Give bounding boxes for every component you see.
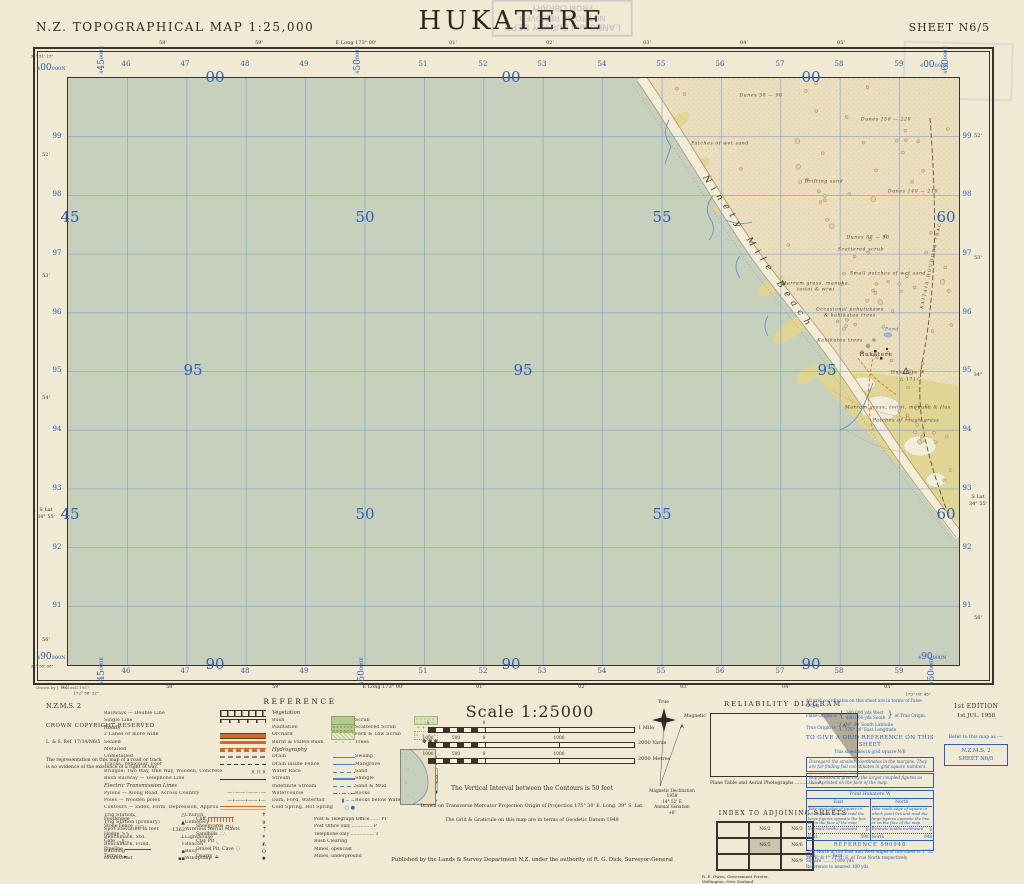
latitude-tick-left: 52' [42, 152, 50, 158]
legend-label: Cliff [196, 817, 206, 823]
longitude-tick-top: 04' [740, 40, 748, 46]
legend-symbol [208, 817, 234, 822]
longitude-tick-bottom: E Long 173° 00' [363, 684, 404, 690]
grid-easting-bottom: 51 [419, 667, 428, 675]
full-northing-label: 400000N [37, 64, 66, 73]
refer-label: Refer to this map as :— [938, 735, 1014, 741]
gref-unit-line: Reference to nearest 100 yds [806, 864, 934, 869]
grid-easting-top: 54 [598, 60, 607, 68]
longitude-tick-top: 58' [159, 40, 167, 46]
corner-graticule-value: 172° 58' 32" [73, 691, 98, 696]
brace-glyph: { [838, 722, 843, 732]
adjoining-grid: N6/2N6/3N6/5N6/6N6/9 [716, 821, 814, 871]
gref-north-cell: North Take south edge of square in which… [871, 799, 934, 840]
legend-label: Gravel Pit, Cave [196, 847, 234, 853]
latitude-tick-right: 34° 55' [969, 501, 987, 507]
legend-label: Pipeline [104, 847, 123, 853]
scale-bar-number: 1000 [554, 736, 565, 741]
legend-label: Gate [104, 839, 115, 845]
legend-bottom-row: Hedge∿∿Sandhills∴∴Telephone only .......… [104, 831, 438, 839]
longitude-tick-top: E Long 173° 00' [336, 40, 377, 46]
legend-symbol [333, 778, 355, 780]
legend-symbol [125, 849, 151, 850]
legend-pair: Watercourse [272, 791, 355, 797]
grid-number-large: 45 [60, 210, 79, 225]
legend-symbol [220, 806, 266, 811]
latitude-tick-right: 34° [974, 372, 983, 378]
grid-number-large: 95 [817, 363, 836, 378]
legend-symbol [220, 748, 266, 752]
legend-symbol: ⫢ [124, 855, 127, 860]
legend-row: Roads [104, 725, 266, 732]
legend-symbol [333, 793, 355, 794]
gref-east-cell: East Take west edge of square in which p… [807, 799, 871, 840]
declination-caption-line: +8' [636, 810, 708, 815]
legend: REFERENCE Railways — Double LineSingle L… [100, 697, 438, 872]
legend-pair: Indefinite Stream [272, 784, 355, 790]
grid-northing-right: 97 [963, 249, 972, 257]
grid-number-large: 95 [513, 363, 532, 378]
longitude-tick-top: 02' [546, 40, 554, 46]
grid-northing-left: 95 [53, 366, 62, 374]
grid-northing-left: 94 [53, 425, 62, 433]
legend-label: Unmetalled [104, 754, 218, 760]
grid-number-large: 55 [652, 507, 671, 522]
edition-date: 1st JUL. 1958 [938, 713, 1014, 720]
gref-false-origin-vals: 300,000 yds West400,000 yds South [846, 710, 886, 721]
grid-number-large: 60 [936, 210, 955, 225]
legend-label: Indefinite Stream [272, 784, 331, 790]
legend-pair: Dam, Ford, Waterfall▮ ⌣ ~ [272, 798, 355, 804]
adjoining-cell [717, 822, 749, 838]
legend-row: Burnt & Fallen BushTrees✽ ✽ ✽ [272, 739, 438, 746]
map-frame: Ninety Mile Beach KAITAIA HOUHORA TRACK … [33, 47, 994, 685]
scale-bar-number: 1000 [554, 752, 565, 757]
legend-label: Telephone only ................ T [314, 832, 434, 838]
stamp-line: NOT TO BE REMOVED [504, 13, 621, 22]
pond [884, 333, 892, 337]
grid-easting-top: 52 [479, 60, 488, 68]
land-label: Kahikatea trees [817, 339, 863, 344]
grid-easting-top: 48 [241, 60, 250, 68]
legend-symbol: ○ ● [345, 806, 355, 811]
full-northing-label: 490000N [37, 653, 66, 662]
legend-label: Single Line [104, 718, 218, 724]
grid-number-large: 55 [652, 210, 671, 225]
gref-false-origin: False Origin is [806, 713, 837, 718]
legend-symbol [333, 764, 355, 765]
legend-bottom-row: Stone Fence▭▭Sheepyards⊓⊔Post Office onl… [104, 824, 438, 832]
gref-point: Point Hukatere W [807, 791, 933, 800]
land-label: Occasional pohutukawa [816, 308, 884, 313]
legend-bottom-row: Footbridge⌒CliffPost & Telegraph Office … [104, 816, 438, 824]
land-label: Dunes 140 — 210 [888, 190, 938, 195]
land-label: Marram grass, toitoi, manuka & flax [845, 406, 951, 411]
grid-easting-top: 58 [835, 60, 844, 68]
scale-bar-number: 1000 [423, 736, 434, 741]
scale-bar-tick [559, 759, 560, 763]
grid-number-large: 50 [355, 210, 374, 225]
grid-northing-right: 99 [963, 132, 972, 140]
latitude-tick-left: 34° 55' [37, 514, 55, 520]
legend-label: Drain [272, 754, 331, 760]
grid-easting-bottom: 53 [538, 667, 547, 675]
longitude-tick-top: 01' [449, 40, 457, 46]
legend-symbol: —◦——◦——◦— [227, 791, 266, 796]
legend-row: Single Line [104, 717, 266, 724]
scale-bar-miles [428, 727, 635, 733]
gref-line1: All grid coordinates on this sheet are i… [806, 698, 934, 709]
longitude-tick-bottom: 59' [272, 684, 280, 690]
scale-bar-yards [428, 742, 635, 748]
adjoining-cell [749, 854, 781, 870]
legend-symbol: ⌒ [132, 817, 137, 822]
grid-easting-bottom: 57 [776, 667, 785, 675]
legend-row: Bush Railway — Telephone Line [104, 776, 266, 783]
grid-easting-top: 53 [538, 60, 547, 68]
edition-block: 1st EDITION 1st JUL. 1958 Refer to this … [938, 703, 1014, 766]
legend-label: 2 Lanes or more wide [104, 732, 218, 738]
full-easting-label: 460000E [942, 46, 951, 74]
grid-easting-bottom: 59 [895, 667, 904, 675]
declination-caption: Magnetic Declination195814° 52' EAnnual … [636, 788, 708, 815]
legend-pair: Drain [272, 754, 355, 760]
legend-label: Railways — Double Line [104, 711, 218, 717]
grid-easting-top: 49 [300, 60, 309, 68]
legend-symbol [333, 786, 355, 787]
longitude-tick-bottom: 04' [782, 684, 790, 690]
grid-easting-top: 46 [122, 60, 131, 68]
grid-northing-right: 95 [963, 366, 972, 374]
legend-row: Contours — Index, Form, Depression, Appr… [104, 805, 266, 812]
full-easting-label: 445000E [98, 657, 107, 685]
legend-symbol [220, 710, 266, 717]
legend-symbol: ⊓⊔ [225, 825, 233, 830]
latitude-tick-right: 52' [974, 133, 982, 139]
latitude-tick-left: 56' [42, 637, 50, 643]
legend-symbol [333, 757, 355, 758]
legend-symbol [220, 756, 266, 758]
legend-label: Quarry [196, 854, 212, 860]
legend-label: Bridges: Two Way, One Way, Wooden, Concr… [104, 769, 249, 775]
gref-worked-example: Point Hukatere W East Take west edge of … [806, 790, 934, 842]
brace-glyph: { [839, 710, 844, 720]
land-label: Pond [885, 328, 899, 333]
full-easting-label: 450000E [354, 46, 363, 74]
land-label: Dunes 150 — 220 [861, 118, 911, 123]
grid-number-large: 60 [936, 507, 955, 522]
grid-northing-left: 96 [53, 308, 62, 316]
land-label: △ 171 [900, 378, 917, 383]
latitude-tick-right: S Lat [971, 494, 984, 500]
legend-row: Railways — Double Line [104, 710, 266, 717]
legend-row: Bridges: Two Way, One Way, Wooden, Concr… [104, 768, 266, 775]
grid-easting-top: 51 [419, 60, 428, 68]
legend-symbol: —•——•——•— [227, 799, 266, 804]
legend-label: Mines, opencast [314, 847, 434, 853]
longitude-tick-top: 03' [643, 40, 651, 46]
projection-note: Drawn on Transverse Mercator Projection … [420, 804, 644, 809]
legend-label: Contours — Index, Form, Depression, Appr… [104, 805, 218, 811]
legend-label: Cold Spring, Hot Spring [272, 805, 343, 811]
grid-northing-right: 98 [963, 190, 972, 198]
legend-symbol [333, 772, 355, 773]
legend-label: Watercourse [272, 791, 331, 797]
true-label: True [658, 700, 669, 705]
gref-subtitle: This sheet lies in grid square N/B [806, 749, 934, 754]
scale-bar-number: 0 [483, 752, 486, 757]
gref-note2: Any position is given by the larger coup… [806, 773, 934, 788]
legend-pair: Stream [272, 776, 355, 782]
adjoining-cell [717, 854, 749, 870]
edition-number: 1st EDITION [938, 703, 1014, 711]
grid-number-large: 00 [801, 70, 820, 85]
scale-bar-subdivision [429, 759, 486, 763]
longitude-tick-bottom: 05' [884, 684, 892, 690]
legend-row: Sealed [104, 739, 266, 746]
legend-symbol: ∿∿ [121, 832, 129, 837]
grid-easting-bottom: 54 [598, 667, 607, 675]
grid-northing-right: 91 [963, 601, 972, 609]
corner-graticule-value: 173° 05' 45" [905, 692, 930, 697]
legend-row: Tracks, Vehicular, Foot [104, 761, 266, 768]
legend-label: Hedge [104, 832, 119, 838]
legend-label: Scrub [355, 718, 412, 724]
refer-series: N.Z.M.S. 2 [945, 747, 1007, 755]
scale-bar-tick [559, 728, 560, 732]
legend-symbol [220, 719, 266, 723]
scanned-topo-map-page: { "header": { "left": "N.Z. TOPOGRAPHICA… [0, 0, 1024, 876]
land-label: Hukatere [859, 352, 892, 358]
legend-symbol: ∴∴ [220, 832, 226, 837]
legend-row: Unmetalled [104, 754, 266, 761]
grid-number-large: 50 [355, 507, 374, 522]
land-label: Dunes 80 — 90 [846, 236, 889, 241]
grid-northing-left: 91 [53, 601, 62, 609]
latitude-tick-left: S Lat [39, 507, 52, 513]
scale-bar-subdivision [429, 728, 486, 732]
grid-northing-right: 96 [963, 308, 972, 316]
grid-northing-right: 92 [963, 543, 972, 551]
legend-label: Poles — Wooden poles [104, 798, 225, 804]
corner-graticule-value: 34° 51' 15" [31, 54, 54, 59]
land-label: Hukatere W [891, 371, 925, 376]
longitude-tick-bottom: 01' [476, 684, 484, 690]
land-label: & kahikatea trees [824, 314, 876, 319]
latitude-tick-right: 56' [974, 615, 982, 621]
legend-row: Metalled [104, 746, 266, 753]
legend-pair: Drain inside Fence [272, 762, 355, 768]
longitude-tick-top: 05' [837, 40, 845, 46]
legend-label: Pylons — Along Road, Across Country [104, 791, 225, 797]
land-label: Scattered scrub [838, 248, 884, 253]
legend-symbol: ◟ [216, 840, 218, 845]
legend-symbol [220, 741, 266, 744]
legend-symbol: ⟁ [214, 855, 218, 860]
legend-pair: Cold Spring, Hot Spring○ ● [272, 805, 355, 811]
gref-true-origin: True Origin is [806, 725, 836, 730]
legend-subheading: Roads [104, 725, 120, 732]
scale-bar-number: 500 [452, 736, 460, 741]
grid-easting-bottom: 58 [835, 667, 844, 675]
legend-row: Poles — Wooden poles—•——•——•— [104, 798, 266, 805]
legend-symbol [333, 739, 355, 746]
legend-symbol [220, 779, 266, 780]
grid-northing-left: 97 [53, 249, 62, 257]
legend-row: 2 Lanes or more wide [104, 732, 266, 739]
scale-bar-number: 0 [483, 736, 486, 741]
latitude-tick-right: 53' [974, 255, 982, 261]
legend-bottom-row: Terrace⫢Quarry⟁Mines, underground [104, 854, 438, 862]
gref-true-origin-vals: 39° 00' South Latitude175° 30' East Long… [845, 722, 897, 733]
scale-bar-number: 1 [427, 721, 430, 726]
legend-bottom-rows: Footbridge⌒CliffPost & Telegraph Office … [104, 816, 438, 861]
stamp-line: LANDS and SURVEY DEPT. [504, 22, 621, 32]
legend-symbol [220, 764, 266, 765]
true-north-star [652, 708, 676, 732]
library-stamp: LANDS and SURVEY DEPT. NOT TO BE REMOVED… [492, 0, 633, 37]
full-easting-label: 445000E [98, 46, 107, 74]
legend-pair: Water Race [272, 769, 355, 775]
grid-number-large: 90 [205, 657, 224, 672]
legend-label: Drain inside Fence [272, 762, 331, 768]
legend-row: Pylons — Along Road, Across Country—◦——◦… [104, 790, 266, 797]
stamp-line: FROM LIBRARY [504, 4, 621, 13]
legend-label: Trees [355, 740, 420, 746]
grid-easting-bottom: 46 [122, 667, 131, 675]
scale-bar-tick [559, 743, 560, 747]
grid-reference-panel: All grid coordinates on this sheet are i… [806, 698, 934, 869]
legend-label: Footbridge [104, 817, 130, 823]
scale-bar-unit: 2000 Metres [638, 756, 670, 762]
grid-northing-right: 94 [963, 425, 972, 433]
grid-northing-left: 98 [53, 190, 62, 198]
legend-subheading: Electric Transmission Lines [104, 783, 177, 790]
legend-label: Bush Clearing [314, 839, 434, 845]
legend-label: Post & Telegraph Office ...... PT [314, 817, 434, 823]
grid-northing-left: 99 [53, 132, 62, 140]
adjoining-cell [717, 838, 749, 854]
scale-bar-metres [428, 758, 635, 764]
grid-number-large: 95 [183, 363, 202, 378]
land-label: Dunes 50 — 90 [739, 94, 782, 99]
grid-easting-top: 47 [181, 60, 190, 68]
legend-bottom-row: PipelineGravel Pit, Cave◌Mines, opencast [104, 846, 438, 854]
legend-label: Clay Pit [196, 839, 214, 845]
land-label: Small patches of wet sand [850, 272, 926, 277]
scale-bar-subdivision [429, 743, 486, 747]
legend-label: Dam, Ford, Waterfall [272, 798, 340, 804]
grid-number-large: 90 [801, 657, 820, 672]
grid-northing-left: 92 [53, 543, 62, 551]
land-label: toitoi & wiwi [797, 288, 835, 293]
land-label: Patches of wet sand [691, 142, 749, 147]
grid-northing-left: 93 [53, 484, 62, 492]
legend-label: Water Race [272, 769, 331, 775]
scale-bar-number: 1000 [423, 752, 434, 757]
grid-number-large: 00 [501, 70, 520, 85]
datum-note: The Grid & Graticule on this map are in … [445, 818, 618, 823]
grid-easting-top: 57 [776, 60, 785, 68]
publisher-note: Published by the Lands & Survey Departme… [391, 857, 673, 863]
legend-subheading: Hydrography [272, 747, 307, 754]
printer-note-line: Wellington, New Zealand [702, 879, 864, 884]
legend-label: Burnt & Fallen Bush [272, 740, 331, 746]
longitude-tick-bottom: 57' [61, 684, 69, 690]
vertical-interval-note: The Vertical Interval between the Contou… [451, 785, 613, 792]
legend-symbol [220, 733, 266, 739]
grid-northing-right: 93 [963, 484, 972, 492]
longitude-tick-bottom: 02' [578, 684, 586, 690]
grid-north-note: Grid North at the East and West edges of… [806, 849, 940, 860]
legend-symbol: ◌ [236, 847, 240, 852]
adjoining-cell: N6/5 [749, 838, 781, 854]
adjoining-cell: N6/2 [749, 822, 781, 838]
sheet-number: SHEET N6/5 [909, 21, 990, 34]
legend-label: Stone Fence [104, 824, 133, 830]
grid-easting-bottom: 48 [241, 667, 250, 675]
latitude-tick-left: 53' [42, 273, 50, 279]
legend-label: Bush Railway — Telephone Line [104, 776, 218, 782]
grid-number-large: 00 [205, 70, 224, 85]
scale-bar-unit: 2000 Yards [638, 740, 666, 746]
legend-label: Fern & Low Scrub [355, 732, 412, 738]
legend-symbol: )( )( )( [251, 770, 266, 775]
scale-bar-unit: 1 Mile [638, 725, 654, 731]
legend-title: REFERENCE [220, 697, 380, 707]
grid-easting-bottom: 47 [181, 667, 190, 675]
grid-easting-bottom: 49 [300, 667, 309, 675]
full-easting-label: 450000E [358, 657, 367, 685]
magnetic-arrowhead [680, 724, 685, 729]
legend-row: Electric Transmission Lines [104, 783, 266, 790]
grid-easting-bottom: 56 [716, 667, 725, 675]
grid-easting-bottom: 55 [657, 667, 666, 675]
brace-glyph: } [887, 710, 892, 720]
legend-symbol: —∥— [117, 840, 129, 845]
longitude-tick-bottom: 58' [166, 684, 174, 690]
grid-easting-top: 59 [895, 60, 904, 68]
gref-of-true-origin: of True Origin. [895, 713, 927, 718]
land-label: Marram grass, manuka, [782, 282, 851, 287]
grid-easting-top: 56 [716, 60, 725, 68]
legend-label: Sheepyards [196, 824, 223, 830]
land-label: Drifting sand [805, 180, 844, 185]
grid-easting-top: 55 [657, 60, 666, 68]
legend-bottom-row: Gate—∥—Clay Pit◟Bush Clearing [104, 839, 438, 847]
legend-label: Post Office only .............. P [314, 824, 434, 830]
legend-symbol: ▭▭ [135, 825, 144, 830]
legend-label: Stream [272, 776, 331, 782]
corner-graticule-value: 34° 56' 08" [31, 664, 54, 669]
latitude-tick-left: 54' [42, 395, 50, 401]
scale-bar-number: 0 [483, 721, 486, 726]
refer-box: N.Z.M.S. 2 SHEET N6/5 [944, 744, 1008, 766]
gref-note1: Disregard the smaller coordinates in the… [806, 757, 934, 772]
legend-symbol: ▮ ⌣ ~ [342, 799, 355, 804]
legend-label: Sealed [104, 740, 218, 746]
grid-number-large: 90 [501, 657, 520, 672]
legend-label: Terrace [104, 854, 122, 860]
grid-easting-bottom: 52 [479, 667, 488, 675]
scale-title: Scale 1:25000 [450, 702, 610, 721]
full-easting-label: 460000E [928, 657, 937, 685]
gref-title: TO GIVE A GRID REFERENCE ON THIS SHEET [806, 735, 934, 750]
legend-label: Metalled [104, 747, 218, 753]
longitude-tick-bottom: 03' [680, 684, 688, 690]
refer-sheet: SHEET N6/5 [945, 755, 1007, 763]
legend-label: Orchard [272, 732, 329, 738]
